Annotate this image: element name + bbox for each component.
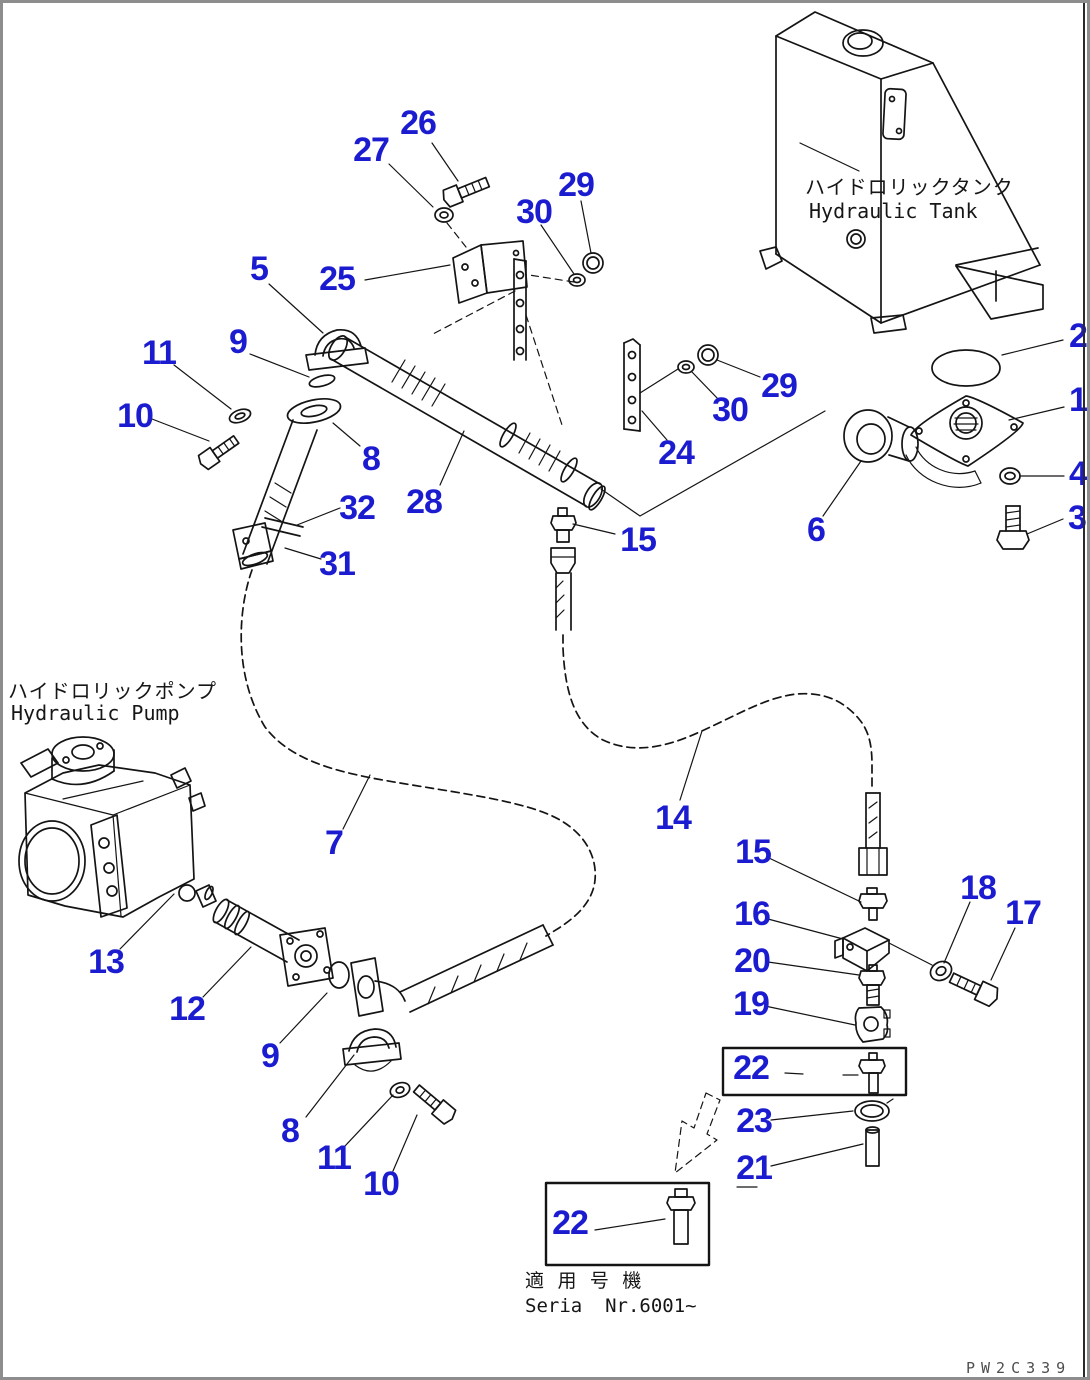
callout-23: 23 — [736, 1104, 772, 1138]
tank-label-en: Hydraulic Tank — [809, 199, 978, 223]
bracket-25 — [453, 241, 527, 303]
parts-diagram-page: ハイドロリックタンク Hydraulic Tank ハイドロリックポンプ Hyd… — [0, 0, 1090, 1380]
hose-14-end-fitting — [551, 548, 575, 630]
clamp-23 — [855, 1099, 893, 1121]
callout-19: 19 — [733, 987, 769, 1021]
return-tube-8 — [241, 395, 343, 569]
serial-note-en: Seria Nr.6001~ — [525, 1295, 697, 1317]
serial-note-jp: 適 用 号 機 — [525, 1266, 642, 1293]
callout-11: 11 — [142, 336, 176, 370]
hose-14 — [563, 635, 872, 791]
callout-29: 29 — [761, 369, 797, 403]
nut-29-top — [583, 253, 603, 273]
callout-10: 10 — [363, 1167, 399, 1201]
drawing-number-watermark: PW2C339 — [966, 1359, 1071, 1377]
tube-clamp-5 — [306, 330, 368, 370]
bolt-3 — [997, 506, 1029, 549]
flange-12 — [280, 928, 333, 986]
bracket-31 — [233, 523, 273, 569]
hose-14-lower-end — [859, 793, 887, 875]
callout-6: 6 — [807, 513, 825, 547]
callout-20: 20 — [734, 944, 770, 978]
callout-30: 30 — [712, 393, 748, 427]
tank-label-jp: ハイドロリックタンク — [805, 171, 1014, 200]
wrap-hose — [400, 925, 553, 1012]
callout-16: 16 — [734, 897, 770, 931]
elbow-fitting-6 — [844, 410, 918, 462]
elbow-flange-pump — [351, 958, 405, 1016]
callout-31: 31 — [319, 547, 355, 581]
fitting-22-bottom — [667, 1189, 695, 1244]
callout-30: 30 — [516, 195, 552, 229]
callout-15: 15 — [620, 523, 656, 557]
callout-5: 5 — [250, 252, 268, 286]
pin-21 — [866, 1127, 879, 1166]
callout-14: 14 — [655, 801, 691, 835]
callout-17: 17 — [1005, 896, 1041, 930]
callout-10: 10 — [117, 399, 153, 433]
fitting-15-right — [859, 888, 887, 920]
clamp-8-bottom — [343, 1029, 401, 1071]
tube-12 — [210, 897, 299, 962]
gasket-2 — [932, 350, 1000, 386]
callout-13: 13 — [88, 945, 124, 979]
callout-11: 11 — [317, 1141, 351, 1175]
callout-18: 18 — [960, 871, 996, 905]
reference-arrow — [675, 1093, 720, 1173]
hydraulic-pump-body — [19, 737, 205, 917]
fitting-15-mid — [551, 508, 576, 542]
callout-8: 8 — [362, 442, 380, 476]
clamp-19 — [855, 1007, 890, 1042]
oring-9-top — [308, 373, 336, 389]
callout-22: 22 — [733, 1051, 769, 1085]
fitting-22-right — [859, 1053, 885, 1093]
callout-21: 21 — [736, 1151, 772, 1185]
fitting-20 — [859, 965, 885, 1005]
coupling — [196, 885, 216, 907]
washer-30-right — [678, 361, 694, 373]
callout-29: 29 — [558, 168, 594, 202]
callout-9: 9 — [229, 325, 247, 359]
mount-plate-upper — [514, 259, 526, 360]
callout-27: 27 — [353, 133, 389, 167]
callout-15: 15 — [735, 835, 771, 869]
bolt-10-bottom — [410, 1082, 458, 1126]
washer-4 — [1000, 468, 1020, 484]
callout-22: 22 — [552, 1206, 588, 1240]
callout-8: 8 — [281, 1114, 299, 1148]
callout-26: 26 — [400, 106, 436, 140]
callout-7: 7 — [325, 826, 343, 860]
washer-30-top — [569, 274, 585, 286]
callout-9: 9 — [261, 1039, 279, 1073]
washer-27 — [435, 208, 453, 222]
plate-24 — [624, 339, 640, 431]
callout-24: 24 — [658, 436, 694, 470]
pump-label-jp: ハイドロリックポンプ — [8, 675, 217, 704]
callout-25: 25 — [319, 262, 355, 296]
bolt-26 — [441, 174, 491, 208]
nut-29-right — [698, 345, 718, 365]
hose-7 — [241, 570, 595, 936]
callout-12: 12 — [169, 992, 205, 1026]
pump-label-en: Hydraulic Pump — [11, 701, 180, 725]
callout-28: 28 — [406, 485, 442, 519]
page-right-border — [1083, 3, 1085, 1377]
bracket-16 — [835, 928, 889, 971]
callout-32: 32 — [339, 491, 375, 525]
ball-13 — [179, 885, 195, 901]
